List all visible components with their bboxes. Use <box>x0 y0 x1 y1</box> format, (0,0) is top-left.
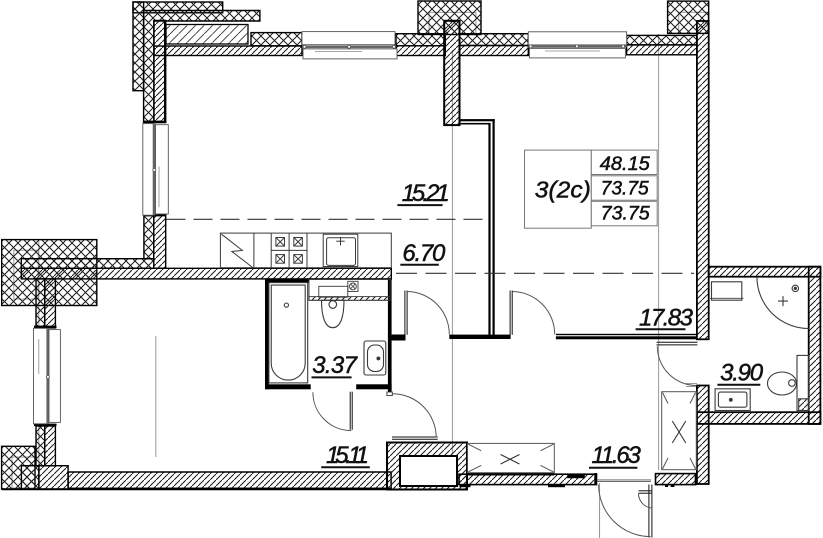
svg-text:3.37: 3.37 <box>312 352 358 379</box>
svg-text:3(2c): 3(2c) <box>535 177 591 203</box>
svg-text:73.75: 73.75 <box>601 204 650 225</box>
svg-text:73.75: 73.75 <box>601 178 649 199</box>
svg-text:15.21: 15.21 <box>402 180 450 207</box>
svg-text:3.90: 3.90 <box>720 359 764 386</box>
svg-text:15.11: 15.11 <box>326 442 369 469</box>
svg-text:11.63: 11.63 <box>592 442 642 469</box>
svg-text:17.83: 17.83 <box>639 305 694 332</box>
svg-text:6.70: 6.70 <box>402 240 446 267</box>
svg-text:48.15: 48.15 <box>600 154 650 175</box>
